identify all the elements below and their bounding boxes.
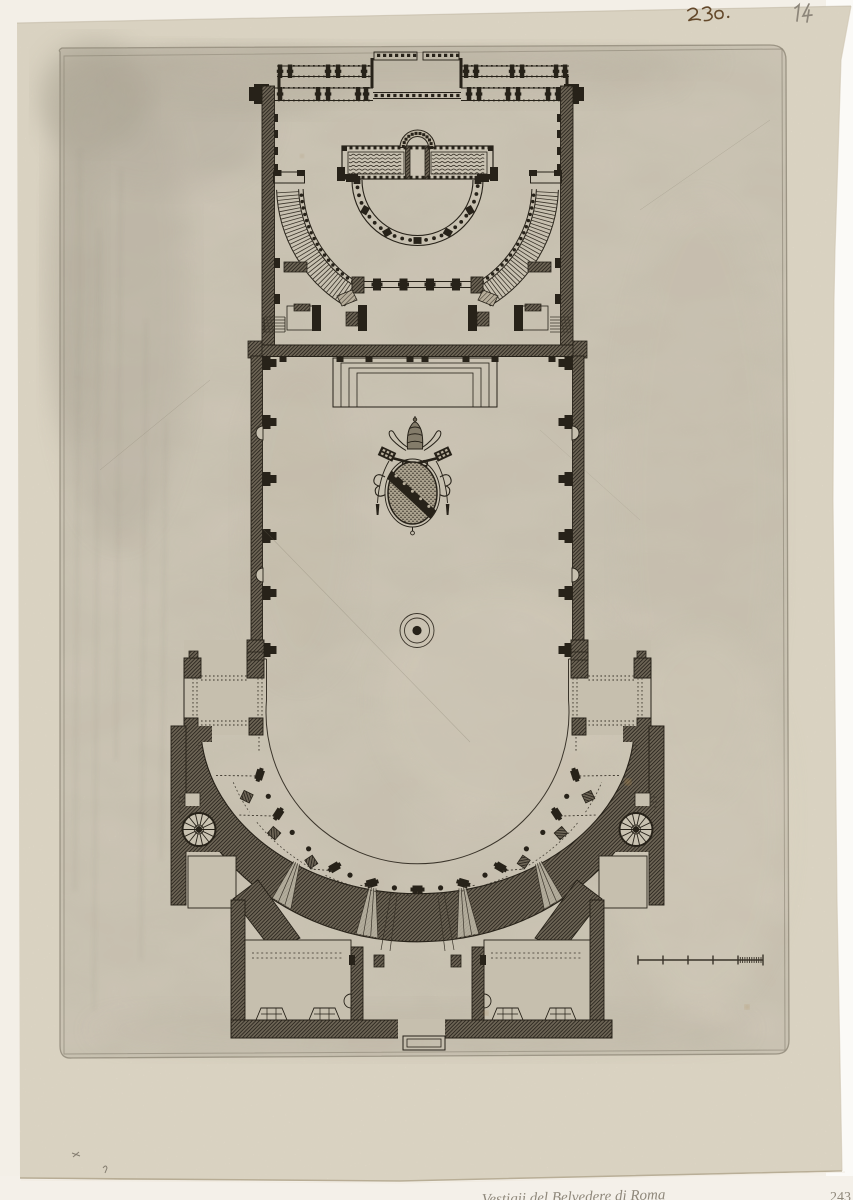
svg-text:243: 243 [830, 1190, 851, 1200]
